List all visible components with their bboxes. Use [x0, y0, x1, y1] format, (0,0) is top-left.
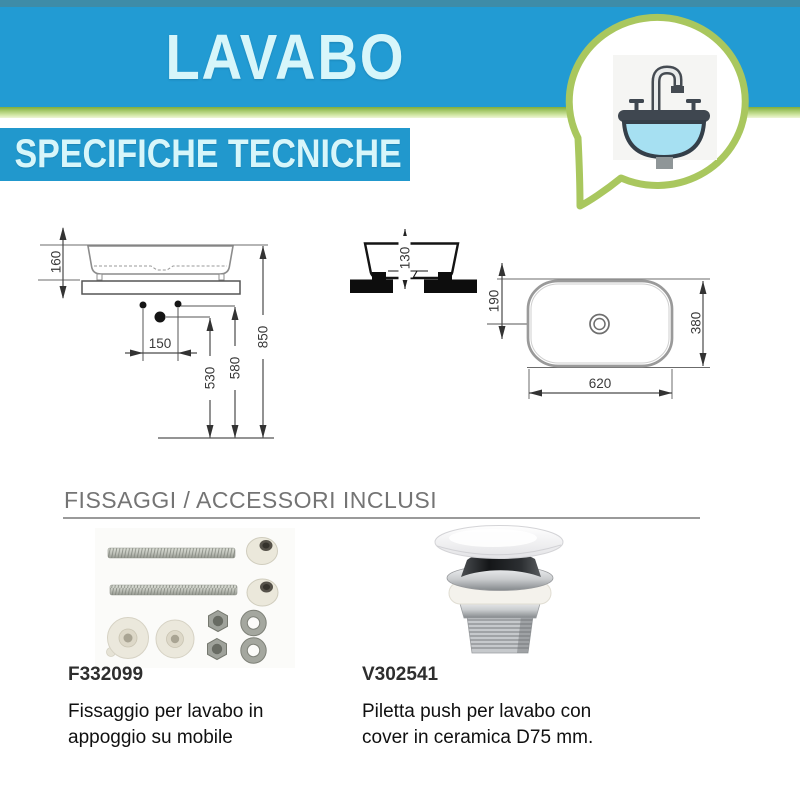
top-view-drawing: 190 380 620 [487, 263, 711, 399]
top-strip [0, 0, 800, 7]
dim-130: 130 [398, 247, 413, 270]
subtitle-banner: SPECIFICHE TECNICHE [0, 128, 410, 181]
dim-150: 150 [149, 336, 172, 351]
drain-cap [435, 526, 563, 559]
dim-530: 530 [203, 367, 218, 390]
item-code: V302541 [362, 664, 617, 686]
item-description: Fissaggio per lavabo in appoggio su mobi… [68, 699, 286, 751]
dim-850: 850 [256, 326, 271, 349]
push-drain-image [423, 520, 573, 665]
item-description: Piletta push per lavabo con cover in cer… [362, 699, 610, 751]
technical-drawings: 160 150 530 [0, 200, 800, 470]
side-view-drawing: 160 150 530 [38, 227, 274, 438]
item-code: F332099 [68, 664, 308, 686]
front-view-drawing: 130 [350, 229, 477, 293]
sink-icon [613, 55, 717, 169]
drain-thread [465, 616, 535, 653]
subtitle-text: SPECIFICHE TECNICHE [0, 128, 402, 181]
dim-190: 190 [487, 290, 502, 313]
dim-160: 160 [49, 251, 64, 274]
section-divider [63, 517, 700, 519]
dim-380: 380 [689, 312, 704, 335]
spec-sheet-page: LAVABO SPECIFICHE TECNICHE [0, 0, 800, 800]
accessory-item-drain: V302541 Piletta push per lavabo con cove… [362, 664, 617, 751]
speech-bubble [552, 10, 764, 212]
accessories-section-title: FISSAGGI / ACCESSORI INCLUSI [64, 487, 437, 514]
dim-620: 620 [589, 376, 612, 391]
page-title: LAVABO [0, 7, 570, 107]
dim-580: 580 [228, 357, 243, 380]
fixing-kit-image [95, 528, 295, 668]
accessory-item-fixing: F332099 Fissaggio per lavabo in appoggio… [68, 664, 308, 751]
